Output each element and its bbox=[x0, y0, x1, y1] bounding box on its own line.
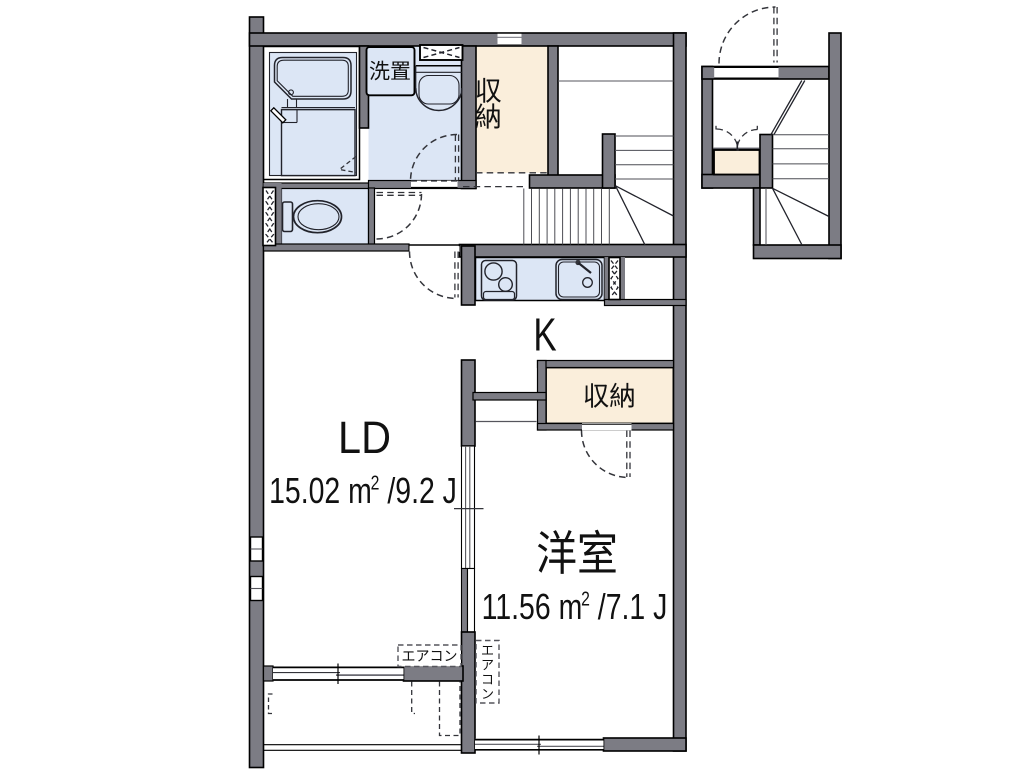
svg-text:15.02 m2 /9.2 J: 15.02 m2 /9.2 J bbox=[269, 471, 457, 511]
svg-text:コ: コ bbox=[481, 672, 494, 687]
svg-text:ア: ア bbox=[481, 658, 494, 673]
svg-text:エアコン: エアコン bbox=[402, 648, 458, 664]
svg-text:エ: エ bbox=[481, 643, 494, 658]
svg-text:洗置: 洗置 bbox=[369, 60, 411, 83]
svg-text:収納: 収納 bbox=[583, 382, 636, 412]
svg-text:ン: ン bbox=[481, 687, 494, 702]
svg-text:LD: LD bbox=[338, 414, 391, 464]
svg-text:納: 納 bbox=[475, 102, 502, 132]
svg-text:K: K bbox=[533, 309, 556, 361]
svg-text:11.56 m2 /7.1 J: 11.56 m2 /7.1 J bbox=[482, 587, 668, 627]
svg-text:洋室: 洋室 bbox=[536, 528, 618, 580]
